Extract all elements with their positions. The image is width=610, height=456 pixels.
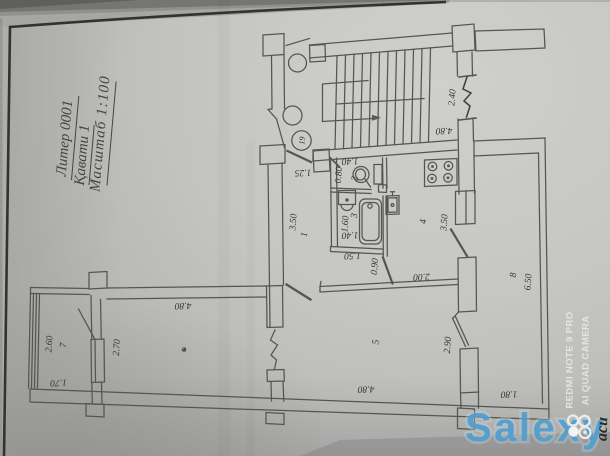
svg-text:1.25: 1.25 (294, 167, 311, 178)
svg-text:2.40: 2.40 (447, 89, 458, 107)
svg-text:1.50: 1.50 (344, 250, 361, 261)
svg-text:0.90: 0.90 (370, 258, 381, 276)
svg-text:4.80: 4.80 (357, 383, 374, 394)
svg-text:4.80: 4.80 (174, 300, 191, 311)
svg-text:2.60: 2.60 (44, 335, 55, 353)
svg-text:6.50: 6.50 (523, 273, 534, 291)
svg-text:3: 3 (350, 213, 360, 220)
svg-text:3.50: 3.50 (288, 213, 299, 232)
svg-text:REDMI NOTE 9 PRO: REDMI NOTE 9 PRO (565, 311, 576, 408)
svg-text:5: 5 (371, 339, 381, 345)
svg-text:1.40: 1.40 (341, 155, 358, 166)
svg-text:19: 19 (297, 136, 307, 145)
svg-text:8: 8 (509, 272, 519, 278)
svg-text:1.70: 1.70 (50, 377, 67, 388)
svg-text:аси: аси (594, 417, 610, 442)
svg-text:2.00: 2.00 (413, 271, 430, 282)
svg-text:3.50: 3.50 (439, 214, 450, 233)
svg-text:4.80: 4.80 (435, 125, 452, 136)
svg-text:AI QUAD CAMERA: AI QUAD CAMERA (581, 315, 592, 405)
svg-text:2.70: 2.70 (112, 339, 123, 357)
svg-text:1.80: 1.80 (500, 388, 517, 399)
svg-text:0.80: 0.80 (334, 166, 345, 184)
svg-text:4: 4 (419, 219, 429, 225)
svg-text:2.90: 2.90 (443, 336, 454, 354)
svg-text:2: 2 (350, 176, 360, 182)
svg-text:1: 1 (300, 232, 310, 237)
svg-text:1.40: 1.40 (341, 229, 358, 240)
